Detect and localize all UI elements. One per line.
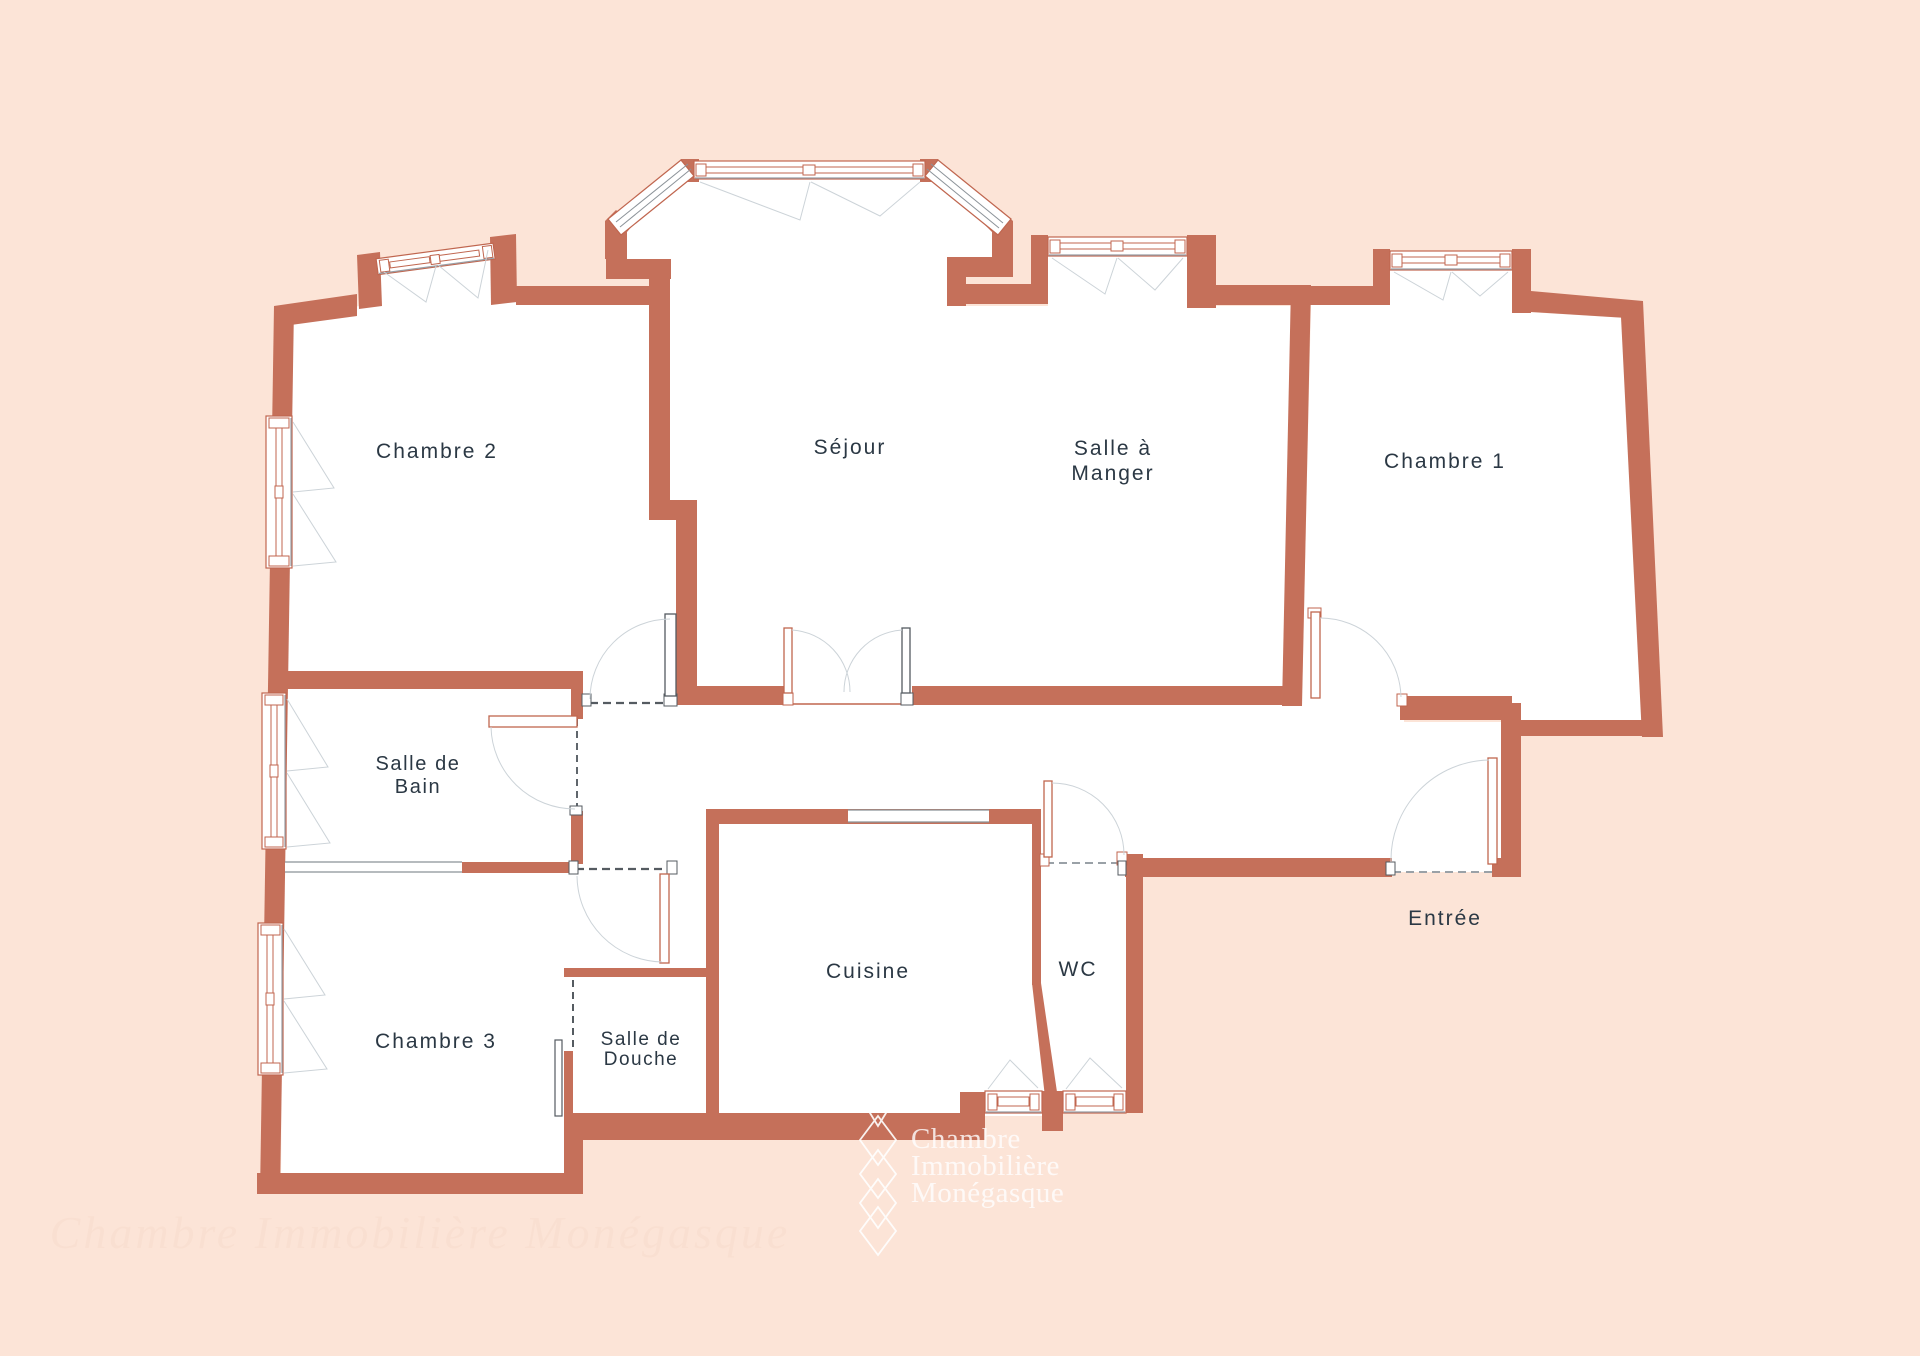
svg-text:Cuisine: Cuisine	[826, 960, 910, 983]
svg-text:Chambre Immobilière Monégasque: Chambre Immobilière Monégasque	[50, 1207, 791, 1258]
svg-text:Manger: Manger	[1071, 462, 1154, 485]
svg-text:Chambre 3: Chambre 3	[375, 1030, 497, 1053]
svg-text:Monégasque: Monégasque	[911, 1177, 1064, 1209]
svg-text:Chambre 1: Chambre 1	[1384, 450, 1506, 473]
svg-text:WC: WC	[1059, 958, 1098, 981]
svg-text:Salle de: Salle de	[375, 753, 460, 775]
svg-text:Séjour: Séjour	[814, 436, 887, 459]
svg-text:Douche: Douche	[604, 1049, 679, 1070]
svg-text:Bain: Bain	[395, 776, 441, 798]
svg-text:Salle à: Salle à	[1074, 437, 1152, 460]
svg-text:Chambre 2: Chambre 2	[376, 440, 498, 463]
svg-text:Salle de: Salle de	[601, 1029, 682, 1050]
svg-text:Entrée: Entrée	[1408, 907, 1482, 930]
